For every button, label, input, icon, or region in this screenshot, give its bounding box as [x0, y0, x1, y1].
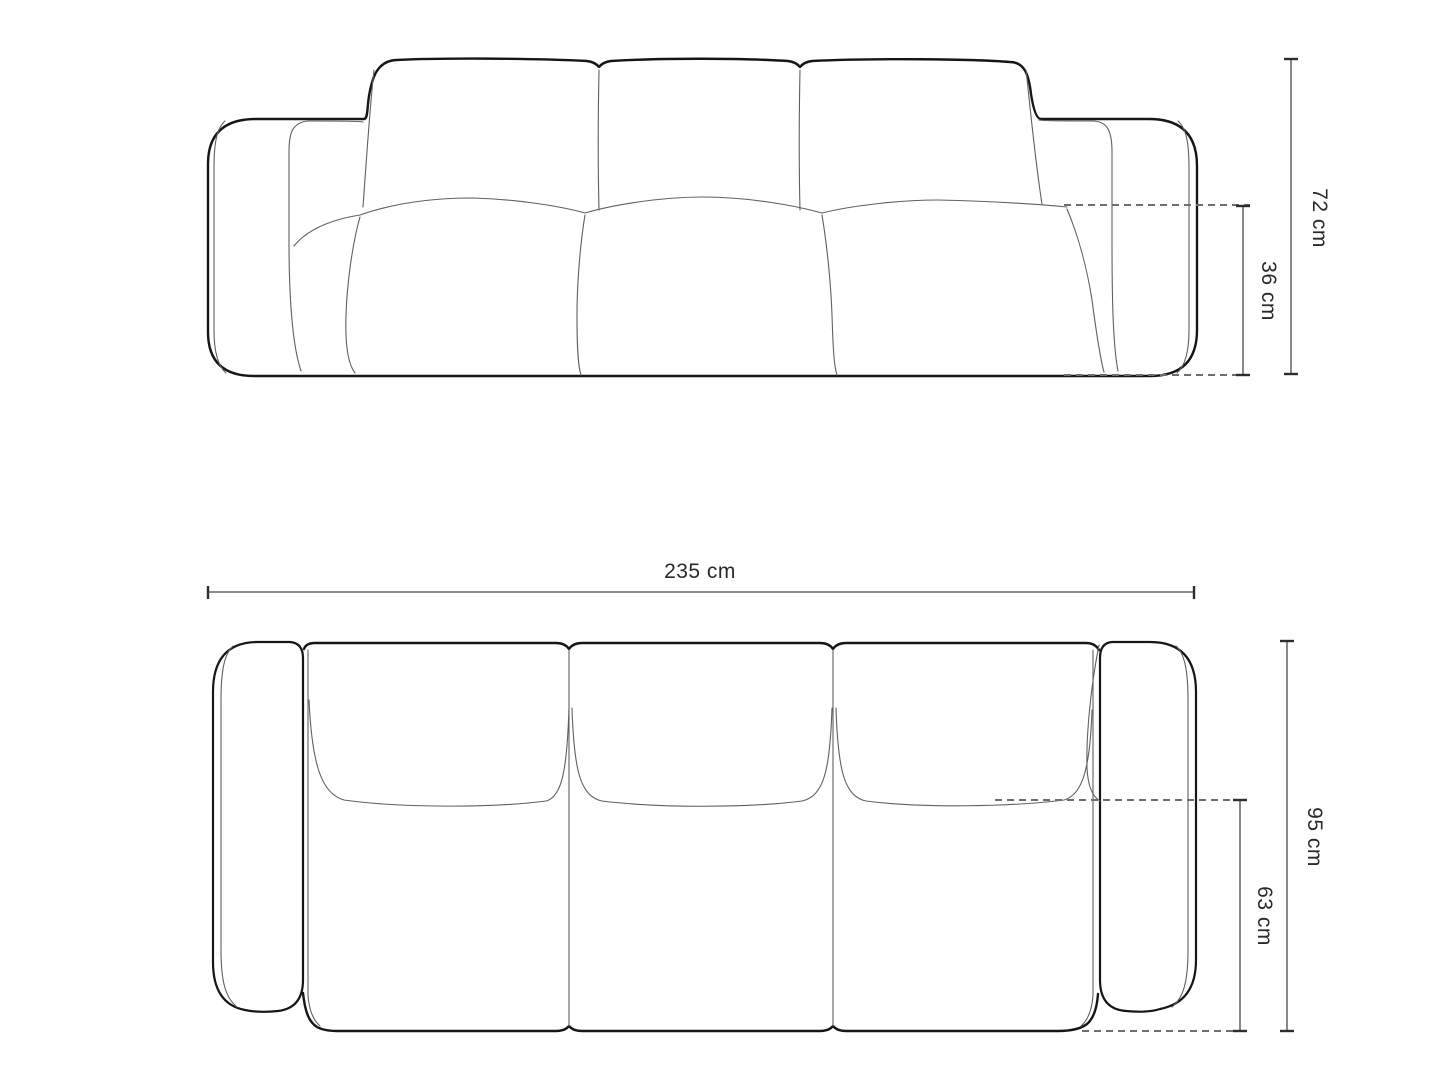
- front-view: 36 cm 72 cm: [208, 59, 1331, 376]
- dimension-seat-depth: 63 cm: [1233, 800, 1276, 1031]
- seat-deck-line: [294, 197, 1067, 246]
- left-arm-edge-contour: [214, 121, 226, 373]
- top-left-arm-inner-contour: [221, 646, 237, 1007]
- left-arm-front-face: [289, 121, 363, 371]
- top-view-contours: [221, 645, 1188, 1026]
- seat-cushion-right-edge: [1067, 209, 1104, 372]
- dimension-total-width: 235 cm: [208, 560, 1194, 599]
- right-arm-front-face: [1039, 120, 1118, 371]
- top-modules-bottom-edge: [303, 993, 1098, 1031]
- top-extension-lines: [995, 800, 1247, 1031]
- sofa-front-outline: [208, 59, 1197, 376]
- right-arm-edge-contour: [1177, 121, 1189, 373]
- backrest-curve-2: [572, 708, 832, 806]
- top-modules-top-edge: [304, 643, 1099, 650]
- back-cushion-divider-1: [598, 70, 599, 210]
- back-cushion-divider-2: [799, 70, 800, 210]
- top-right-armrest: [1100, 642, 1196, 1012]
- top-view: 63 cm 95 cm: [213, 641, 1326, 1031]
- top-module3-right-edge: [1081, 650, 1093, 1026]
- seat-cushion-left-edge: [346, 217, 360, 373]
- top-left-armrest: [213, 642, 303, 1012]
- dimension-total-depth: 95 cm: [1280, 641, 1326, 1031]
- backrest-curve-1: [309, 700, 569, 806]
- total-height-label: 72 cm: [1308, 188, 1331, 248]
- dimension-total-height: 72 cm: [1284, 59, 1331, 374]
- seat-cushion-divider-2: [822, 215, 837, 375]
- total-depth-label: 95 cm: [1303, 807, 1326, 867]
- diagram-canvas: 36 cm 72 cm 235 cm: [0, 0, 1454, 1090]
- seat-cushion-divider-1: [577, 215, 585, 375]
- back-cushion-right-edge: [1026, 70, 1042, 204]
- front-view-contours: [214, 70, 1189, 375]
- back-cushion-left-edge: [363, 70, 374, 207]
- sofa-dimension-diagram: 36 cm 72 cm 235 cm: [0, 0, 1454, 1090]
- top-right-arm-inner-contour: [1172, 646, 1188, 1007]
- front-extension-lines: [1064, 205, 1250, 375]
- seat-depth-label: 63 cm: [1253, 886, 1276, 946]
- total-width-label: 235 cm: [664, 560, 736, 583]
- seat-height-label: 36 cm: [1257, 261, 1280, 321]
- backrest-curve-3: [836, 708, 1092, 806]
- dimension-seat-height: 36 cm: [1236, 206, 1280, 375]
